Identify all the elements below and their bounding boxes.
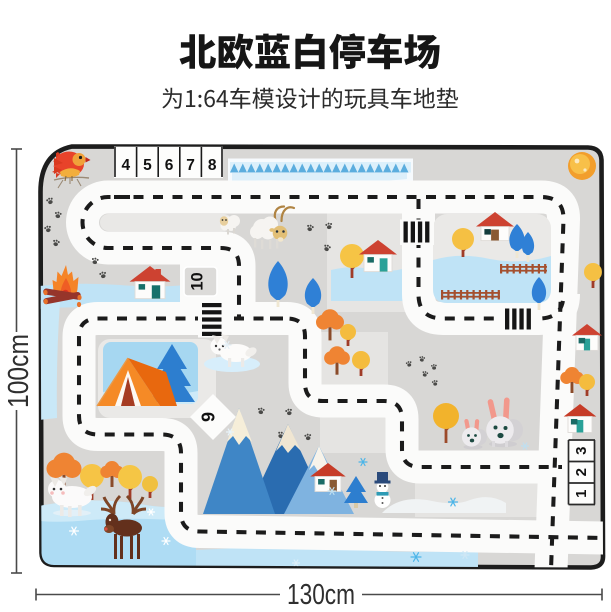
svg-text:6: 6: [165, 157, 174, 174]
svg-text:8: 8: [208, 157, 217, 174]
svg-text:130cm: 130cm: [287, 579, 355, 611]
svg-text:10: 10: [189, 272, 207, 290]
svg-text:4: 4: [121, 157, 130, 174]
svg-text:100cm: 100cm: [3, 334, 35, 408]
svg-text:1: 1: [573, 490, 590, 498]
svg-text:2: 2: [573, 468, 590, 476]
svg-text:7: 7: [186, 157, 195, 174]
svg-text:9: 9: [199, 412, 219, 422]
svg-text:3: 3: [573, 447, 590, 455]
svg-text:5: 5: [143, 157, 152, 174]
